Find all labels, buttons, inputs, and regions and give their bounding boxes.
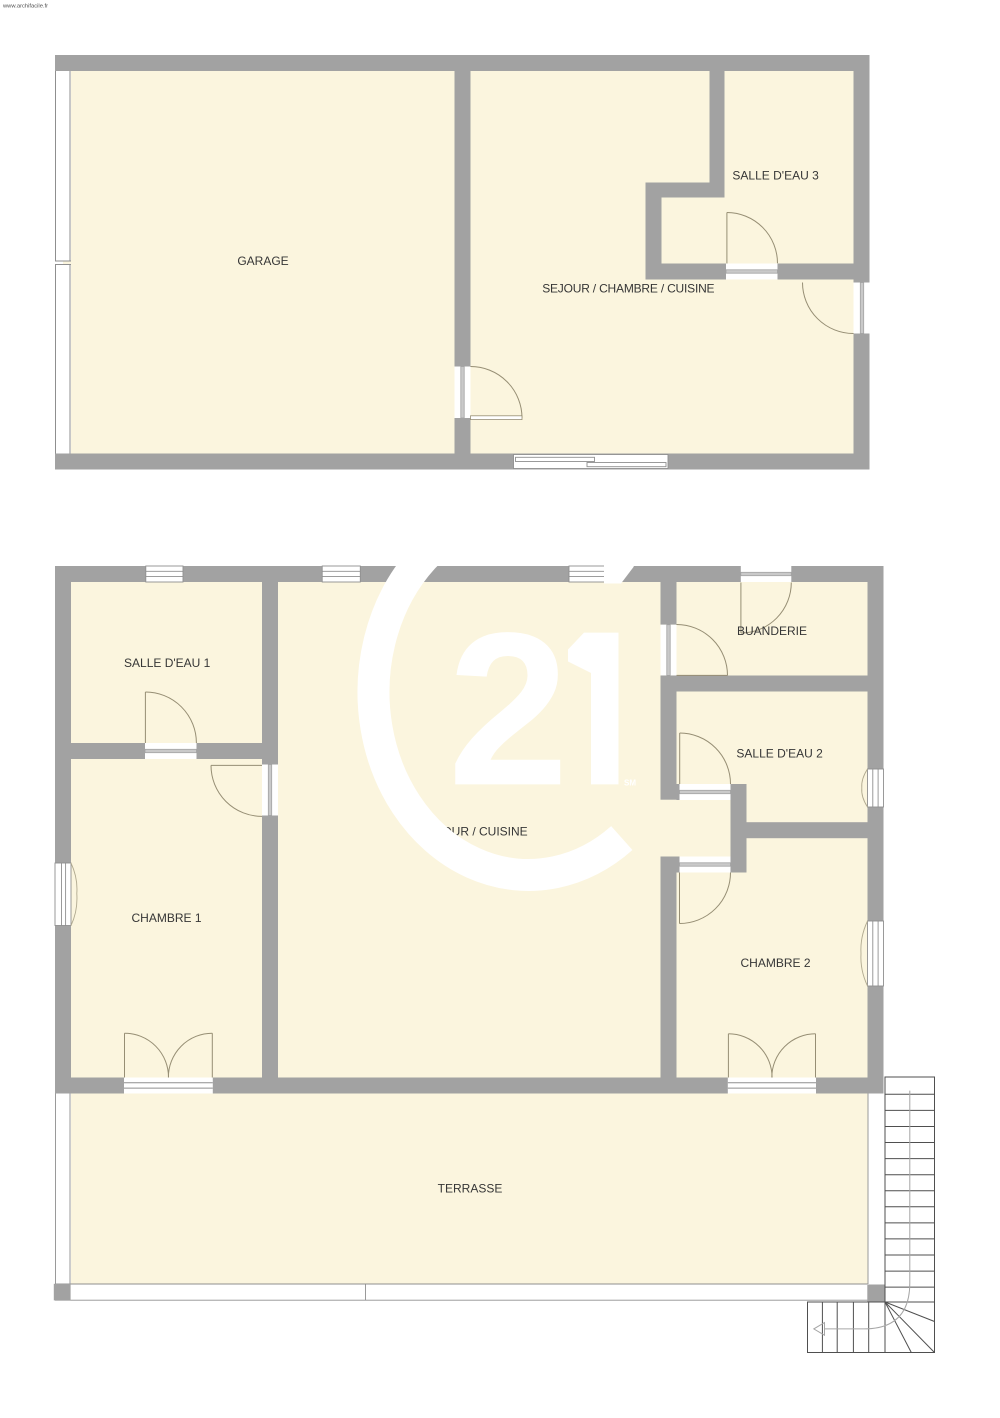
svg-text:CHAMBRE 2: CHAMBRE 2: [740, 956, 810, 970]
svg-text:SALLE D'EAU 3: SALLE D'EAU 3: [732, 168, 819, 182]
svg-text:SALLE D'EAU 2: SALLE D'EAU 2: [736, 746, 823, 760]
svg-text:GARAGE: GARAGE: [237, 254, 288, 268]
svg-text:TERRASSE: TERRASSE: [438, 1181, 503, 1195]
svg-text:SALLE D'EAU 1: SALLE D'EAU 1: [124, 656, 211, 670]
svg-text:SM: SM: [624, 779, 636, 788]
svg-text:2: 2: [448, 588, 569, 831]
svg-text:CHAMBRE 1: CHAMBRE 1: [131, 911, 201, 925]
svg-text:BUANDERIE: BUANDERIE: [737, 624, 807, 638]
svg-text:www.archifacile.fr: www.archifacile.fr: [2, 4, 48, 10]
svg-text:SEJOUR / CHAMBRE / CUISINE: SEJOUR / CHAMBRE / CUISINE: [542, 281, 714, 295]
